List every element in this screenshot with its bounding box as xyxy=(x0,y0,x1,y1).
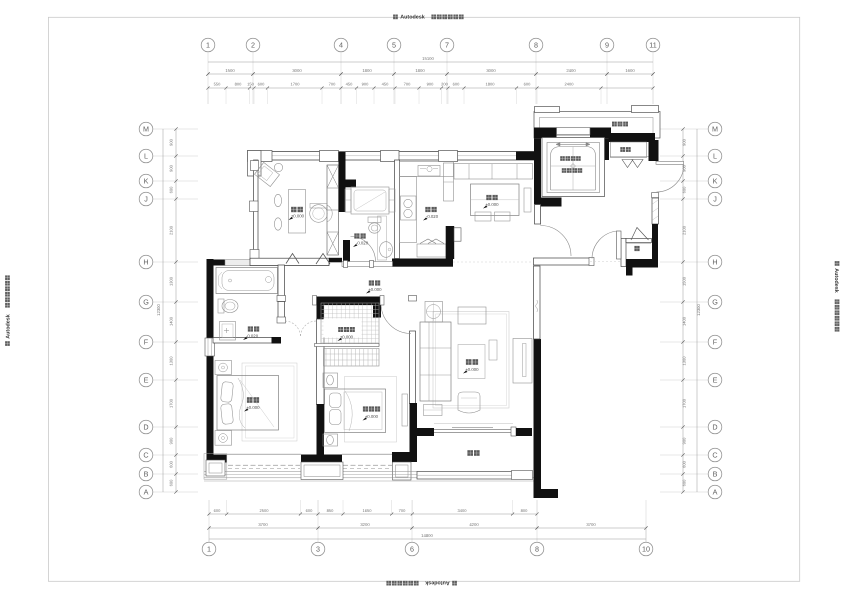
svg-text:±0.000: ±0.000 xyxy=(465,367,479,372)
svg-text:850: 850 xyxy=(327,508,334,513)
svg-text:K: K xyxy=(144,177,149,186)
svg-text:3000: 3000 xyxy=(486,68,496,73)
svg-text:900: 900 xyxy=(169,138,174,145)
svg-text:1300: 1300 xyxy=(169,276,174,286)
svg-text:1700: 1700 xyxy=(291,82,301,87)
svg-text:8: 8 xyxy=(535,545,539,554)
svg-text:C: C xyxy=(712,451,717,460)
svg-text:11: 11 xyxy=(649,41,656,50)
svg-text:4200: 4200 xyxy=(469,522,479,527)
svg-text:±0.000: ±0.000 xyxy=(291,214,305,219)
svg-text:10: 10 xyxy=(642,545,650,554)
svg-text:200: 200 xyxy=(441,82,448,87)
svg-text:3700: 3700 xyxy=(258,522,268,527)
svg-text:700: 700 xyxy=(399,508,406,513)
svg-text:H: H xyxy=(143,258,148,267)
svg-text:550: 550 xyxy=(214,82,221,87)
svg-text:±0.000: ±0.000 xyxy=(485,202,499,207)
svg-text:800: 800 xyxy=(235,82,242,87)
svg-text:F: F xyxy=(144,338,149,347)
svg-text:1700: 1700 xyxy=(682,398,687,408)
svg-text:900: 900 xyxy=(362,82,369,87)
svg-text:600: 600 xyxy=(214,508,221,513)
svg-text:1650: 1650 xyxy=(363,508,373,513)
svg-text:G: G xyxy=(143,298,149,307)
svg-text:1500: 1500 xyxy=(225,68,235,73)
svg-text:3000: 3000 xyxy=(292,68,302,73)
svg-text:700: 700 xyxy=(404,82,411,87)
svg-text:600: 600 xyxy=(453,82,460,87)
svg-text:600: 600 xyxy=(524,82,531,87)
svg-text:Autodesk: Autodesk xyxy=(5,314,11,339)
svg-text:900: 900 xyxy=(682,138,687,145)
svg-text:12300: 12300 xyxy=(156,304,161,316)
svg-text:450: 450 xyxy=(382,82,389,87)
svg-text:2: 2 xyxy=(251,41,255,50)
svg-text:D: D xyxy=(143,423,148,432)
svg-text:600: 600 xyxy=(169,460,174,467)
svg-text:700: 700 xyxy=(329,82,336,87)
svg-text:1300: 1300 xyxy=(169,356,174,366)
svg-text:E: E xyxy=(144,376,149,385)
svg-text:800: 800 xyxy=(521,508,528,513)
svg-text:Autodesk: Autodesk xyxy=(833,268,839,293)
svg-text:1700: 1700 xyxy=(169,398,174,408)
svg-text:K: K xyxy=(713,177,718,186)
svg-text:M: M xyxy=(143,125,149,134)
svg-text:3200: 3200 xyxy=(360,522,370,527)
svg-text:3700: 3700 xyxy=(586,522,596,527)
svg-text:A: A xyxy=(144,488,149,497)
svg-text:H: H xyxy=(712,258,717,267)
svg-text:2400: 2400 xyxy=(565,82,575,87)
svg-text:600: 600 xyxy=(682,479,687,486)
svg-text:2100: 2100 xyxy=(682,225,687,235)
svg-text:900: 900 xyxy=(169,437,174,444)
svg-text:±0.000: ±0.000 xyxy=(368,287,382,292)
svg-text:Autodesk: Autodesk xyxy=(425,579,450,585)
svg-text:1800: 1800 xyxy=(486,82,496,87)
svg-text:14800: 14800 xyxy=(421,533,433,538)
svg-text:3: 3 xyxy=(316,545,320,554)
svg-text:±0.000: ±0.000 xyxy=(340,335,354,340)
svg-text:2400: 2400 xyxy=(566,68,576,73)
svg-text:900: 900 xyxy=(427,82,434,87)
svg-text:900: 900 xyxy=(169,164,174,171)
svg-text:2100: 2100 xyxy=(169,225,174,235)
svg-text:J: J xyxy=(713,195,717,204)
svg-text:2500: 2500 xyxy=(260,508,270,513)
svg-text:15100: 15100 xyxy=(422,56,434,61)
svg-text:J: J xyxy=(144,195,148,204)
svg-text:B: B xyxy=(144,470,149,479)
svg-text:900: 900 xyxy=(682,437,687,444)
svg-text:600: 600 xyxy=(169,186,174,193)
svg-text:-0.020: -0.020 xyxy=(246,334,259,339)
svg-text:9: 9 xyxy=(605,41,609,50)
svg-text:8: 8 xyxy=(534,41,538,50)
svg-text:Autodesk: Autodesk xyxy=(400,15,425,21)
svg-text:-0.020: -0.020 xyxy=(426,214,439,219)
svg-text:4: 4 xyxy=(339,41,343,50)
svg-text:±0.000: ±0.000 xyxy=(246,405,260,410)
svg-text:1: 1 xyxy=(206,41,210,50)
svg-text:L: L xyxy=(713,152,717,161)
svg-text:F: F xyxy=(713,338,718,347)
svg-text:600: 600 xyxy=(258,82,265,87)
svg-text:450: 450 xyxy=(346,82,353,87)
svg-text:1400: 1400 xyxy=(682,316,687,326)
svg-text:600: 600 xyxy=(306,508,313,513)
svg-text:A: A xyxy=(713,488,718,497)
svg-text:1300: 1300 xyxy=(682,356,687,366)
svg-text:1800: 1800 xyxy=(415,68,425,73)
svg-text:G: G xyxy=(712,298,718,307)
svg-text:600: 600 xyxy=(682,460,687,467)
svg-text:1600: 1600 xyxy=(625,68,635,73)
svg-text:C: C xyxy=(143,451,148,460)
svg-text:D: D xyxy=(712,423,717,432)
svg-text:1500: 1500 xyxy=(682,276,687,286)
svg-text:600: 600 xyxy=(169,479,174,486)
svg-text:1800: 1800 xyxy=(362,68,372,73)
svg-text:1400: 1400 xyxy=(169,316,174,326)
svg-text:1: 1 xyxy=(207,545,211,554)
svg-text:-0.020: -0.020 xyxy=(356,241,369,246)
svg-text:12300: 12300 xyxy=(696,304,701,316)
svg-text:5: 5 xyxy=(392,41,396,50)
svg-text:L: L xyxy=(144,152,148,161)
svg-text:B: B xyxy=(713,470,718,479)
svg-text:6: 6 xyxy=(410,545,414,554)
svg-text:E: E xyxy=(713,376,718,385)
svg-text:7: 7 xyxy=(445,41,449,50)
svg-text:3400: 3400 xyxy=(458,508,468,513)
svg-text:±0.000: ±0.000 xyxy=(365,414,379,419)
svg-text:M: M xyxy=(712,125,718,134)
svg-text:600: 600 xyxy=(682,186,687,193)
svg-text:150: 150 xyxy=(247,82,254,87)
